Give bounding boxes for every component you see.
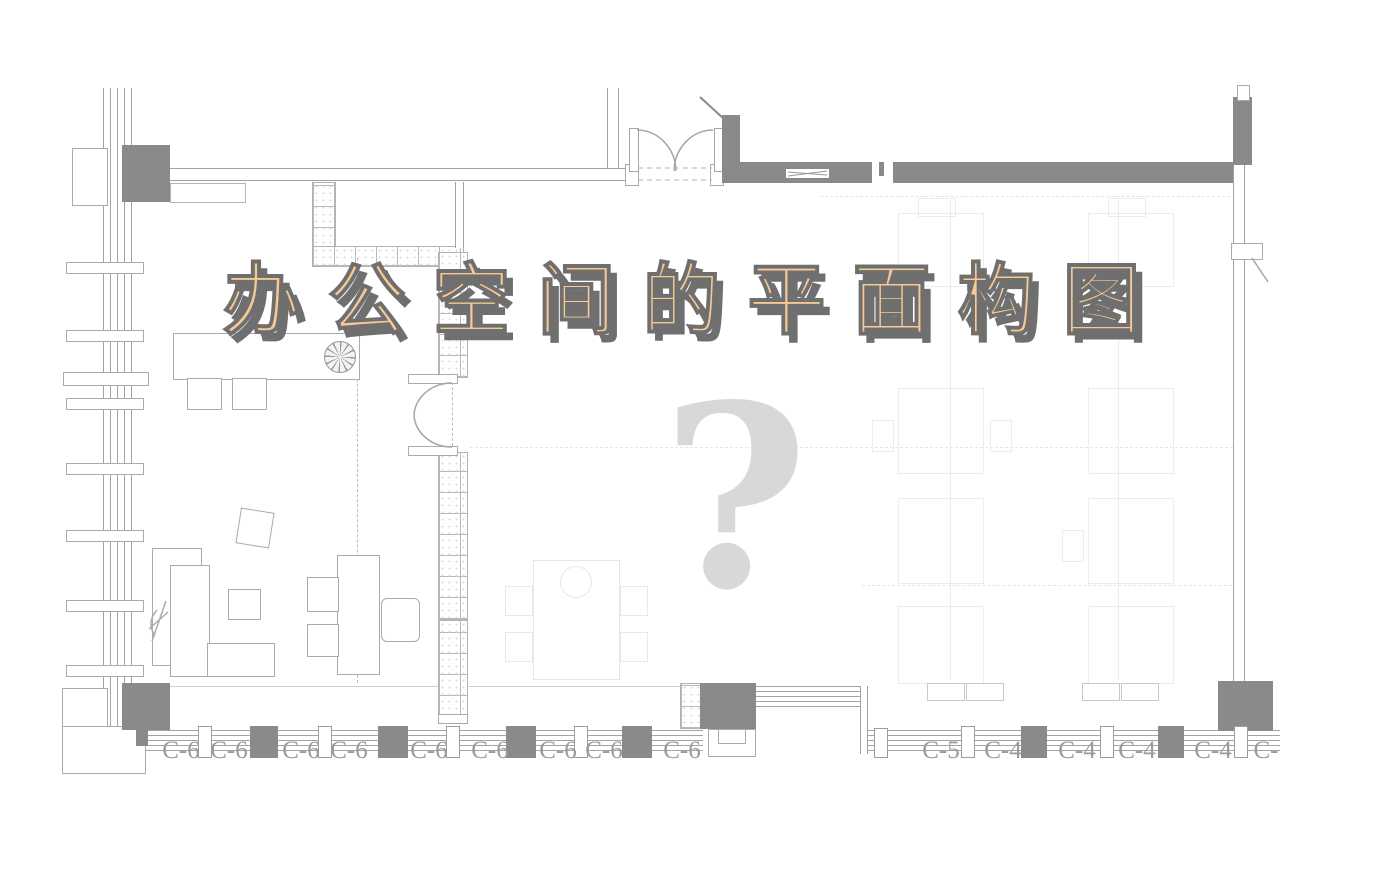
question-mark-watermark: ? <box>640 372 830 624</box>
entry-door-arc-icon <box>637 130 676 171</box>
floor-plan-canvas: C-6 C-6 C-6 C-6 C-6 C-6 C-6 C-6 C-6 C-5 … <box>0 0 1388 888</box>
leader-line <box>700 97 724 119</box>
entry-door-dashed <box>638 168 712 180</box>
poster-title: 办公空间的平面构图 <box>150 238 1240 350</box>
plant-icon <box>149 601 168 641</box>
entry-door-arc-icon <box>674 130 713 171</box>
interior-door-arc-icon <box>414 383 452 416</box>
notch-leader-line <box>1252 258 1268 282</box>
interior-door-arc-icon <box>414 416 452 447</box>
